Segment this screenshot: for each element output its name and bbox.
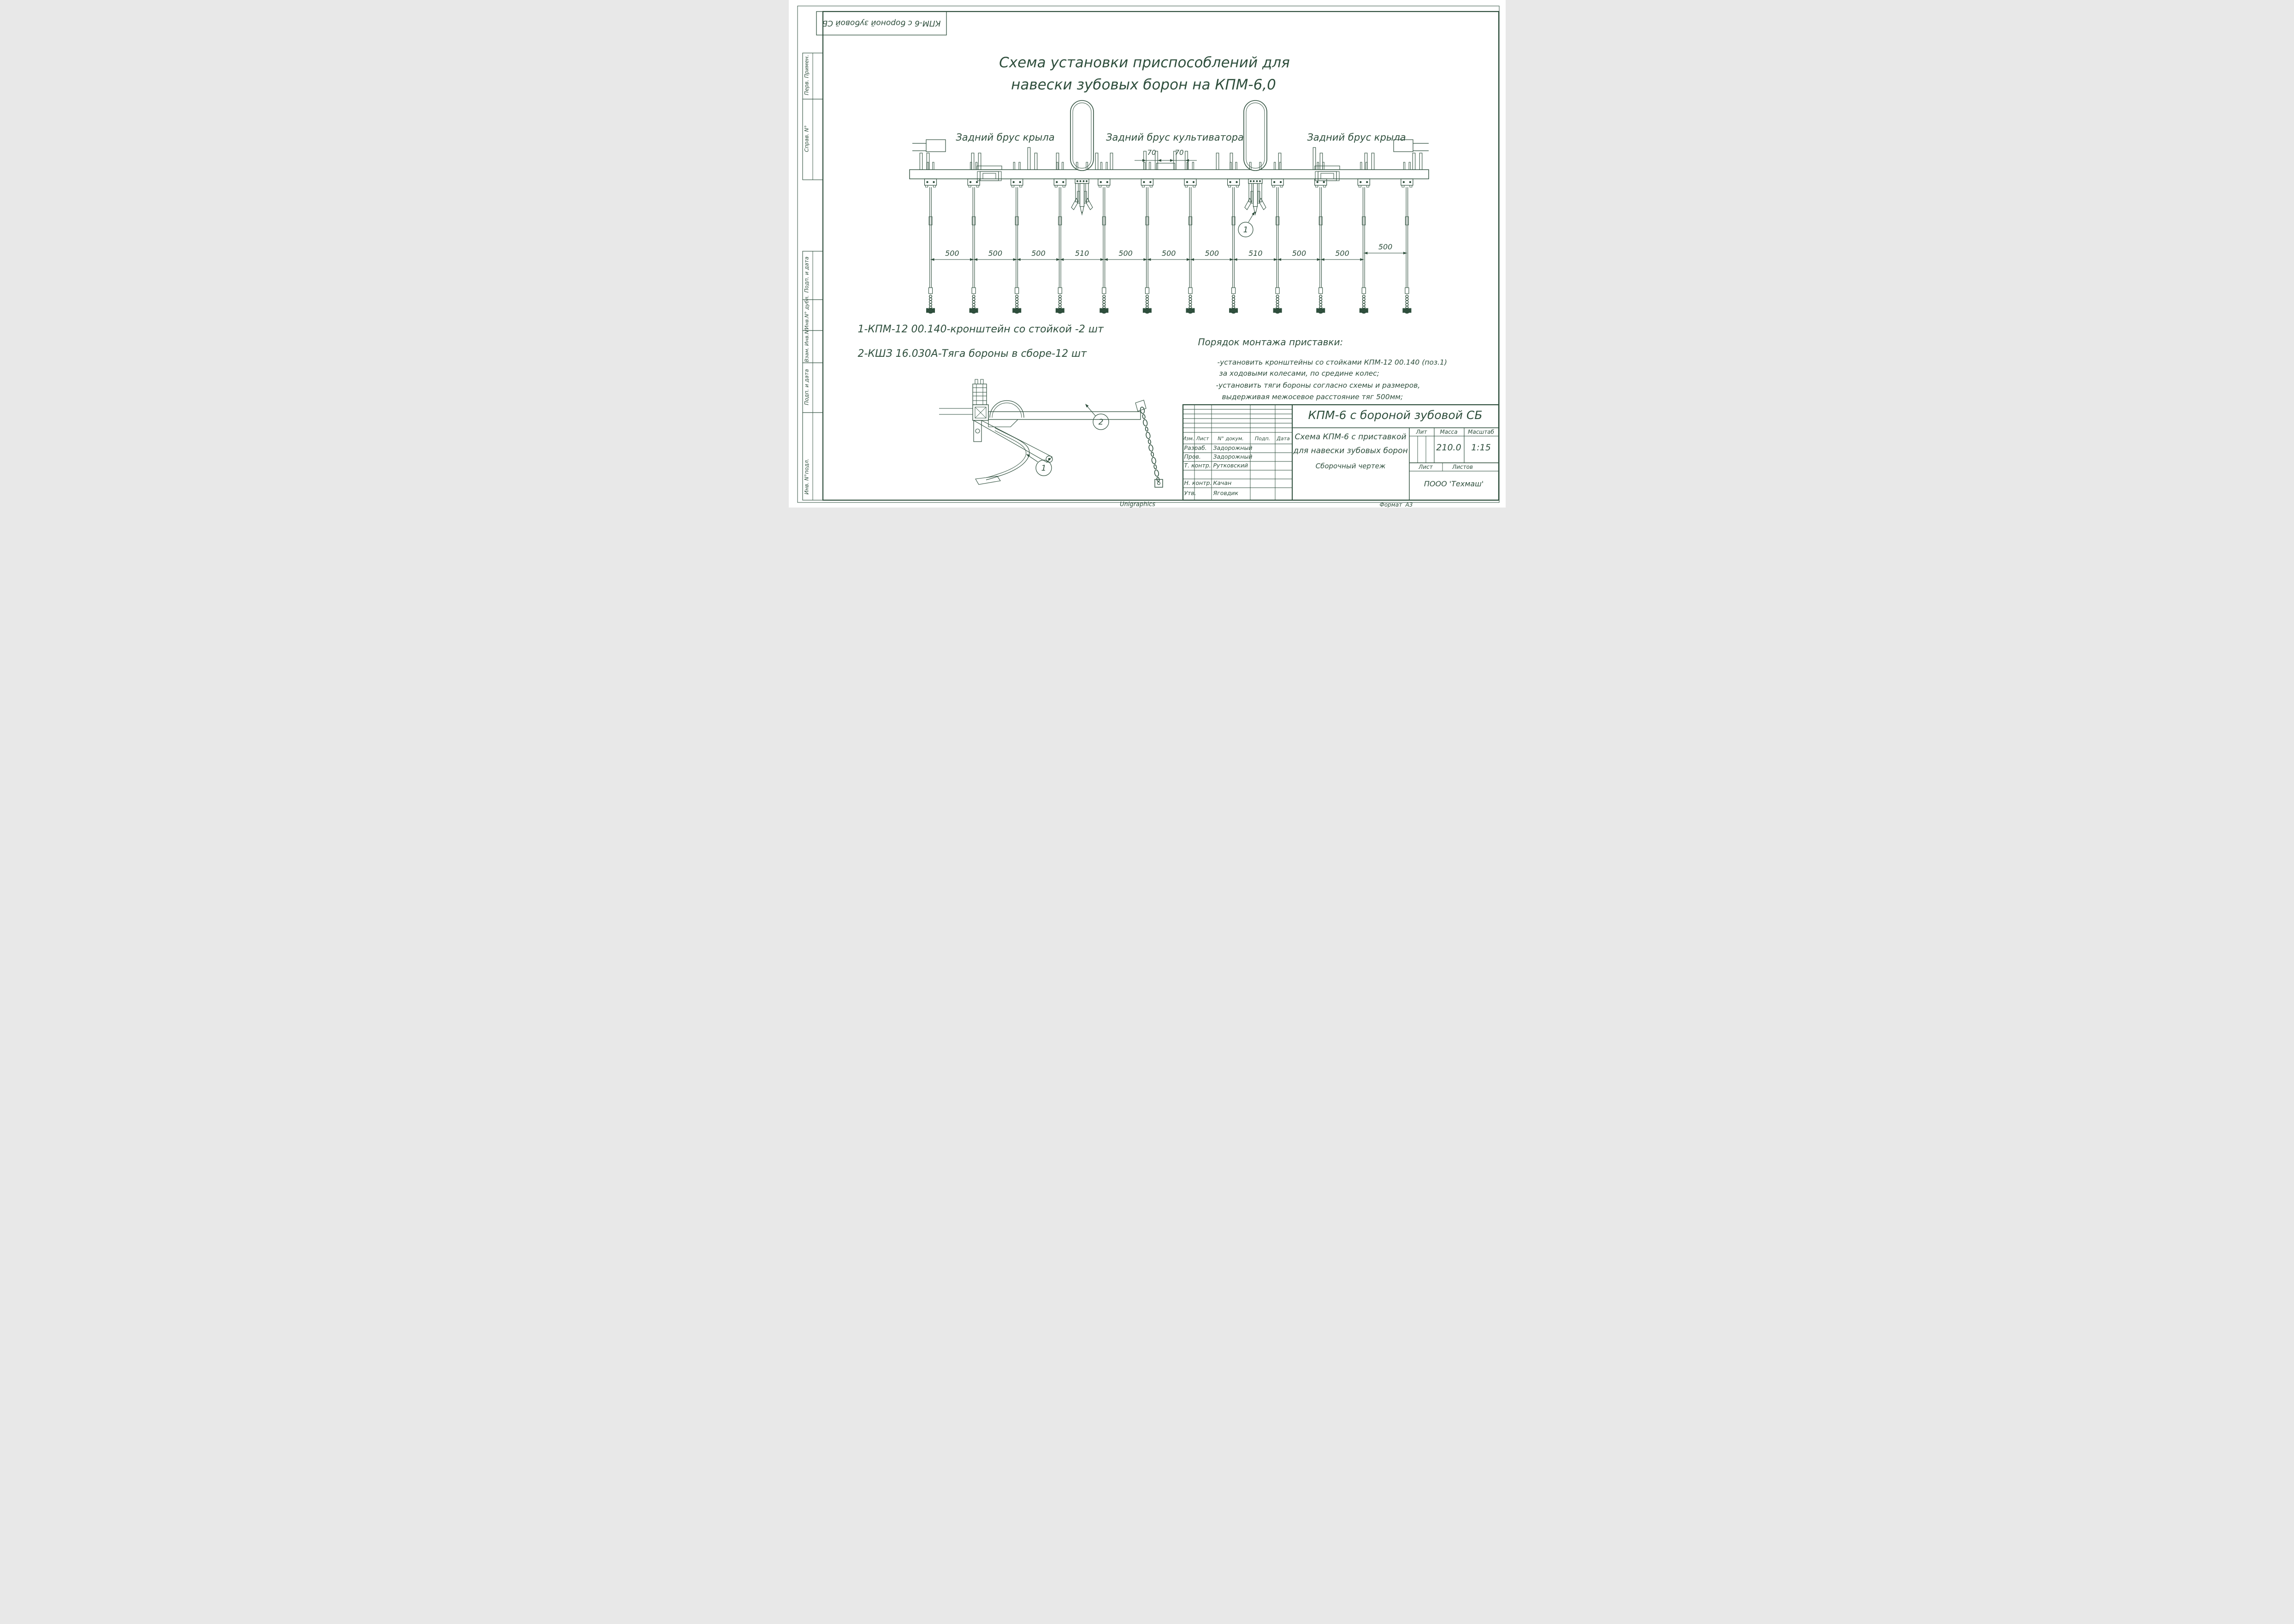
pivot-plate bbox=[974, 420, 981, 442]
chain-bead bbox=[1146, 303, 1148, 306]
u-bolt-stud bbox=[1019, 162, 1020, 170]
frame-post bbox=[1372, 153, 1374, 170]
procedure-line-4: выдерживая межосевое расстояние тяг 500м… bbox=[1222, 394, 1403, 401]
rect bbox=[969, 185, 971, 187]
rect bbox=[1315, 185, 1318, 187]
tooth-ring bbox=[1230, 308, 1236, 313]
rod-splice bbox=[1276, 217, 1279, 225]
frame-post bbox=[1278, 153, 1281, 170]
harrow-tie-rod bbox=[1358, 162, 1370, 313]
chain-bead bbox=[1015, 298, 1018, 301]
u-bolt-stud bbox=[1056, 162, 1058, 170]
chain-bead bbox=[1406, 298, 1408, 301]
wing-coupler bbox=[977, 166, 1002, 181]
chain-bead bbox=[1276, 298, 1279, 301]
bolt bbox=[1366, 181, 1368, 183]
dimension-value: 500 bbox=[1118, 249, 1133, 258]
u-bolt-stud bbox=[1360, 162, 1361, 170]
tooth-ring bbox=[1318, 308, 1323, 313]
titleblock-header-ndokum: N° докум. bbox=[1218, 436, 1244, 441]
tie-rod-bar bbox=[988, 412, 1141, 419]
tooth-collar bbox=[1145, 288, 1149, 294]
u-bolt-stud bbox=[1409, 162, 1410, 170]
bolt bbox=[1253, 180, 1254, 182]
rect bbox=[1409, 185, 1412, 187]
dimension-arrow bbox=[1190, 258, 1194, 261]
footer-format-label: Формат bbox=[1380, 502, 1402, 508]
chain-link bbox=[1154, 470, 1159, 477]
u-bolt-stud bbox=[1106, 162, 1107, 170]
chain-bead bbox=[1146, 301, 1148, 303]
titleblock-role-tkontr: Т. контр. bbox=[1184, 463, 1211, 469]
titleblock-header-list: Лист bbox=[1196, 436, 1209, 441]
u-bolt-stud bbox=[1062, 162, 1063, 170]
chain-bead bbox=[1276, 303, 1279, 306]
bolt bbox=[933, 181, 934, 183]
margin-label-sprav-n: Справ. N° bbox=[804, 99, 810, 179]
dimensions: 5005005005105005005005105005005007070 bbox=[930, 148, 1407, 261]
chain-link bbox=[1142, 419, 1147, 426]
leader-line bbox=[1087, 406, 1095, 416]
frame-post bbox=[1028, 148, 1030, 170]
tooth-collar bbox=[1318, 288, 1322, 294]
drawing-sheet: 5005005005105005005005105005005007070121… bbox=[789, 0, 1506, 508]
tooth-lug bbox=[1409, 308, 1411, 313]
chain-bead bbox=[972, 298, 975, 301]
u-bolt-stud bbox=[976, 162, 977, 170]
spring-tine-inner bbox=[986, 431, 1026, 478]
bolt bbox=[1079, 180, 1081, 182]
spring-tine bbox=[986, 428, 1029, 480]
bolt bbox=[1019, 181, 1021, 183]
wheel-arc-inner bbox=[992, 403, 1022, 418]
chain-end-hole bbox=[1157, 482, 1160, 485]
margin-label-inv-n-podl: Инв. N°подл. bbox=[804, 454, 810, 500]
u-bolt-stud bbox=[932, 162, 934, 170]
bolt bbox=[1012, 181, 1014, 183]
tip-point bbox=[1081, 212, 1082, 216]
titleblock-company: ПООО 'Техмаш' bbox=[1424, 480, 1484, 488]
rod-splice bbox=[972, 217, 975, 225]
rod-splice bbox=[1145, 217, 1148, 225]
chain-bead bbox=[929, 295, 932, 298]
tooth-ring bbox=[1361, 308, 1366, 313]
titleblock-doc-title: КПМ-6 с бороной зубовой СБ bbox=[1308, 409, 1482, 421]
tooth-collar bbox=[1405, 288, 1408, 294]
rect bbox=[1401, 185, 1404, 187]
leader-arrow bbox=[1252, 212, 1255, 215]
balloon-number: 1 bbox=[1243, 225, 1248, 235]
tooth-collar bbox=[972, 288, 976, 294]
chain-link bbox=[1147, 439, 1151, 444]
rect bbox=[1193, 185, 1195, 187]
bolt bbox=[1056, 181, 1058, 183]
harrow-tie-rod bbox=[1011, 162, 1023, 313]
margin-label-vzam-inv-n: Взам. Инв.N° bbox=[804, 330, 809, 362]
chain-bead bbox=[1102, 298, 1105, 301]
tip bbox=[1253, 207, 1257, 212]
chain-bead bbox=[929, 298, 932, 301]
tooth-lug bbox=[1323, 308, 1324, 313]
rect bbox=[1011, 185, 1014, 187]
harrow-tie-rod bbox=[1227, 162, 1239, 313]
titleblock-role-utv: Утв. bbox=[1184, 490, 1196, 496]
tooth-ring bbox=[1188, 308, 1193, 313]
titleblock-name-tkontr: Рутковский bbox=[1213, 463, 1248, 469]
titleblock-header-massa: Масса bbox=[1440, 429, 1457, 435]
dimension-value: 500 bbox=[1292, 249, 1306, 258]
titleblock-header-masshtab: Масштаб bbox=[1468, 429, 1494, 435]
rect bbox=[1315, 171, 1318, 181]
dimension-arrow bbox=[1317, 258, 1320, 261]
chain-bead bbox=[1189, 301, 1192, 303]
dimension-arrow bbox=[1360, 258, 1364, 261]
rect bbox=[977, 166, 1002, 170]
chain-bead bbox=[1232, 298, 1235, 301]
rod-splice bbox=[929, 217, 932, 225]
dimension-arrow bbox=[1274, 258, 1277, 261]
chain-bead bbox=[972, 301, 975, 303]
rect bbox=[1236, 185, 1238, 187]
u-bolt-stud bbox=[1274, 162, 1275, 170]
margin-label-podp-i-data-2: Подп. и дата bbox=[804, 362, 810, 412]
bolt bbox=[1193, 181, 1194, 183]
chain-bead bbox=[972, 295, 975, 298]
dimension-arrow bbox=[1230, 258, 1233, 261]
frame-post bbox=[1110, 153, 1113, 170]
tooth-lug bbox=[1193, 308, 1194, 313]
harrow-tie-rod bbox=[924, 162, 936, 313]
chain-bead bbox=[1276, 295, 1279, 298]
tooth-collar bbox=[1231, 288, 1235, 294]
wing bbox=[1071, 198, 1078, 210]
chain-bead bbox=[1406, 303, 1408, 306]
bolt bbox=[1273, 181, 1275, 183]
callout-balloon-bracket: 1 bbox=[1026, 454, 1052, 476]
harrow-tie-rod bbox=[1401, 162, 1413, 313]
chain-bead bbox=[1189, 303, 1192, 306]
corner-stamp-title: КПМ-6 с бороной зубовой СБ bbox=[817, 19, 946, 27]
dimension-arrow bbox=[1013, 258, 1017, 261]
bolt bbox=[1106, 181, 1108, 183]
clamp-tower bbox=[973, 384, 987, 405]
drawing-title-line1: Схема установки приспособлений для bbox=[999, 56, 1290, 70]
balloon-number: 2 bbox=[1098, 418, 1103, 427]
callout-balloon-rod: 2 bbox=[1085, 404, 1109, 430]
dimension-value: 500 bbox=[1031, 249, 1046, 258]
u-bolt-stud bbox=[1100, 162, 1102, 170]
u-bolt-stud bbox=[1230, 162, 1231, 170]
offset-value: 70 bbox=[1175, 148, 1183, 157]
titleblock-name-razrab: Задорожный bbox=[1213, 445, 1253, 451]
tooth-lug bbox=[1402, 308, 1404, 313]
rect bbox=[1142, 185, 1144, 187]
bolt bbox=[1250, 180, 1251, 182]
titleblock-doc-type: Сборочный чертеж bbox=[1316, 463, 1386, 470]
u-bolt-stud bbox=[1279, 162, 1281, 170]
margin-label-podp-i-data-1: Подп. и дата bbox=[804, 251, 810, 299]
chain-bead bbox=[1319, 301, 1322, 303]
rect bbox=[1323, 185, 1325, 187]
main-beam bbox=[910, 170, 1429, 179]
chain-link bbox=[1151, 457, 1156, 464]
tooth-lug bbox=[1236, 308, 1237, 313]
bolt bbox=[1076, 180, 1078, 182]
dimension-arrow bbox=[930, 258, 934, 261]
rod-splice bbox=[1319, 217, 1322, 225]
tooth-lug bbox=[1100, 308, 1101, 313]
bolt bbox=[1236, 181, 1237, 183]
rod-splice bbox=[1362, 217, 1365, 225]
tooth-ring bbox=[928, 308, 933, 313]
u-bolt-stud bbox=[1192, 162, 1194, 170]
label-rear-bar-left-wing: Задний брус крыла bbox=[956, 133, 1054, 142]
tooth-lug bbox=[1186, 308, 1188, 313]
u-bolt-stud bbox=[1235, 162, 1236, 170]
chain-bead bbox=[1058, 301, 1061, 303]
bolt bbox=[1256, 180, 1257, 182]
dimension-value: 500 bbox=[1335, 249, 1349, 258]
tooth-ring bbox=[1014, 308, 1019, 313]
tooth-lug bbox=[1012, 308, 1014, 313]
frame-post bbox=[1216, 153, 1219, 170]
chain-bead bbox=[1102, 301, 1105, 303]
sweep-blade bbox=[976, 476, 1000, 484]
chain-link bbox=[1148, 444, 1153, 451]
bolt bbox=[1360, 181, 1361, 183]
stand-pivot-hole bbox=[1048, 458, 1050, 460]
chain-bead bbox=[1232, 301, 1235, 303]
frame-post bbox=[1413, 153, 1415, 170]
chain-bead bbox=[1189, 298, 1192, 301]
frame-post bbox=[1095, 153, 1098, 170]
rect bbox=[1099, 185, 1101, 187]
bolt bbox=[1409, 181, 1411, 183]
rod-splice bbox=[1188, 217, 1192, 225]
leader-arrow bbox=[1085, 404, 1088, 407]
harrow-tie-rod bbox=[1098, 162, 1110, 313]
rect bbox=[976, 185, 979, 187]
chain-bead bbox=[1146, 298, 1148, 301]
chain-bead bbox=[972, 303, 975, 306]
rect bbox=[1359, 185, 1361, 187]
margin-label-inv-n-dubl: Инв.N° дубл. bbox=[804, 299, 809, 330]
tooth-lug bbox=[1149, 308, 1151, 313]
rect bbox=[1272, 185, 1275, 187]
titleblock-name-nkontr: Качан bbox=[1213, 480, 1232, 486]
titleblock-masshtab-value: 1:15 bbox=[1471, 443, 1491, 452]
harrow-tie-rod bbox=[968, 162, 980, 313]
tooth-lug bbox=[1106, 308, 1108, 313]
tooth-lug bbox=[1056, 308, 1058, 313]
balloon-number: 1 bbox=[1041, 464, 1046, 473]
procedure-line-2: за ходовыми колесами, по средине колес; bbox=[1219, 370, 1379, 378]
bolt bbox=[1082, 180, 1084, 182]
rect bbox=[1150, 185, 1152, 187]
titleblock-doc-name2: для навески зубовых борон bbox=[1293, 447, 1407, 455]
chain-bead bbox=[1058, 295, 1061, 298]
frame-post bbox=[1320, 153, 1323, 170]
chain-bead bbox=[1362, 303, 1365, 306]
chain-bead bbox=[1362, 298, 1365, 301]
tooth-collar bbox=[1015, 288, 1018, 294]
footer-format-value: А3 bbox=[1406, 502, 1413, 508]
titleblock-header-lit: Лит bbox=[1416, 429, 1427, 435]
tooth-lug bbox=[1019, 308, 1021, 313]
rod-splice bbox=[1102, 217, 1106, 225]
stand-stock bbox=[1080, 183, 1084, 207]
chain-bead bbox=[1319, 298, 1322, 301]
tooth-ring bbox=[971, 308, 976, 313]
rod-gusset bbox=[988, 419, 1018, 427]
bolt bbox=[1280, 181, 1282, 183]
u-bolt-stud bbox=[1143, 162, 1145, 170]
margin-label-perv-primen: Перв. Примен. bbox=[804, 52, 810, 98]
bolt bbox=[970, 181, 971, 183]
u-bolt-stud bbox=[1013, 162, 1015, 170]
chain-bead bbox=[1362, 295, 1365, 298]
dimension-value: 500 bbox=[1161, 249, 1176, 258]
dimension-arrow bbox=[1364, 252, 1367, 254]
bolt bbox=[1323, 181, 1324, 183]
bolt bbox=[1100, 181, 1102, 183]
chain-link bbox=[1145, 432, 1150, 439]
bolt bbox=[1086, 180, 1087, 182]
rod-splice bbox=[1405, 217, 1408, 225]
chain-bead bbox=[1015, 303, 1018, 306]
chain-bead bbox=[1015, 295, 1018, 298]
chain-bead bbox=[1406, 301, 1408, 303]
dimension-arrow bbox=[1060, 258, 1064, 261]
dimension-arrow bbox=[1147, 258, 1151, 261]
dimension-arrow bbox=[1403, 252, 1407, 254]
tooth-lug bbox=[976, 308, 978, 313]
u-bolt-stud bbox=[970, 162, 971, 170]
rect bbox=[1185, 185, 1188, 187]
titleblock-header-listov: Листов bbox=[1452, 464, 1473, 470]
titleblock-doc-name1: Схема КПМ-6 с приставкой bbox=[1295, 433, 1406, 441]
tooth-lug bbox=[933, 308, 934, 313]
harrow-tie-rod bbox=[1271, 162, 1283, 313]
titleblock-header-list2: Лист bbox=[1419, 464, 1432, 470]
callout-balloon-main: 1 bbox=[1238, 212, 1255, 237]
chain-bead bbox=[1276, 301, 1279, 303]
tooth-collar bbox=[1276, 288, 1279, 294]
chain-end-plate bbox=[1155, 479, 1163, 487]
offset-value: 70 bbox=[1147, 148, 1156, 157]
bolt bbox=[1149, 181, 1151, 183]
wheel-tire bbox=[1244, 100, 1267, 171]
rod-splice bbox=[1015, 217, 1018, 225]
dimension-arrow bbox=[1017, 258, 1020, 261]
tooth-collar bbox=[928, 288, 932, 294]
dimension-arrow bbox=[1187, 258, 1190, 261]
titleblock-massa-value: 210.0 bbox=[1436, 443, 1461, 452]
footer-generator: Unigraphics bbox=[1120, 502, 1155, 508]
wing bbox=[1086, 198, 1093, 210]
rod-splice bbox=[1058, 217, 1061, 225]
frame-post bbox=[920, 153, 922, 170]
chain-bead bbox=[1319, 303, 1322, 306]
tooth-lug bbox=[1316, 308, 1318, 313]
dimension-value: 500 bbox=[1205, 249, 1219, 258]
dimension-value: 500 bbox=[945, 249, 959, 258]
harrow-tie-rod bbox=[1054, 162, 1066, 313]
rect bbox=[1321, 173, 1334, 179]
rect bbox=[1055, 185, 1057, 187]
bolt bbox=[926, 181, 928, 183]
frame-post bbox=[1313, 148, 1316, 170]
label-rear-bar-cultivator: Задний брус культиватора bbox=[1106, 133, 1244, 142]
chain-bead bbox=[1102, 303, 1105, 306]
tooth-ring bbox=[1275, 308, 1280, 313]
tooth-collar bbox=[1058, 288, 1062, 294]
chain-link bbox=[1142, 414, 1145, 419]
titleblock-header-podp: Подп. bbox=[1255, 436, 1270, 441]
left-hitch-bracket bbox=[926, 140, 946, 152]
tooth-lug bbox=[1143, 308, 1145, 313]
chain-bead bbox=[929, 301, 932, 303]
tooth-lug bbox=[1273, 308, 1275, 313]
chain-bead bbox=[1058, 298, 1061, 301]
rect bbox=[933, 185, 935, 187]
tooth-lug bbox=[926, 308, 928, 313]
u-bolt-stud bbox=[1366, 162, 1367, 170]
chain-link bbox=[1145, 427, 1148, 431]
harrow-tie-rod bbox=[1184, 162, 1196, 313]
drawing-title-line2: навески зубовых борон на КПМ-6,0 bbox=[1011, 78, 1276, 92]
titleblock-name-prov: Задорожный bbox=[1213, 454, 1253, 460]
bolt bbox=[1143, 181, 1145, 183]
note-item-2: 2-КШЗ 16.030А-Тяга бороны в сборе-12 шт bbox=[858, 349, 1087, 359]
chain-bead bbox=[1102, 295, 1105, 298]
tooth-ring bbox=[1057, 308, 1063, 313]
dimension-arrow bbox=[974, 258, 977, 261]
dimension-arrow bbox=[1142, 159, 1146, 162]
rect bbox=[975, 379, 978, 384]
tire-outline bbox=[1070, 100, 1094, 171]
stand-stock bbox=[1253, 183, 1257, 207]
dimension-arrow bbox=[1170, 159, 1174, 162]
chain-link bbox=[1151, 452, 1154, 456]
rect bbox=[1280, 185, 1283, 187]
dimension-value: 500 bbox=[988, 249, 1002, 258]
bolt bbox=[1186, 181, 1188, 183]
tooth-ring bbox=[1144, 308, 1150, 313]
chain-bead bbox=[1015, 301, 1018, 303]
rect bbox=[999, 171, 1001, 181]
tooth-collar bbox=[1102, 288, 1106, 294]
dimension-value: 510 bbox=[1075, 249, 1089, 258]
tooth-lug bbox=[1229, 308, 1231, 313]
dimension-arrow bbox=[1320, 258, 1324, 261]
harrow-tie-rod bbox=[1141, 162, 1153, 313]
dimension-arrow bbox=[1277, 258, 1281, 261]
dimension-value: 500 bbox=[1378, 242, 1392, 251]
titleblock-role-prov: Пров. bbox=[1184, 454, 1201, 460]
wheel-tire bbox=[1070, 100, 1094, 171]
chain-link bbox=[1153, 465, 1157, 469]
harrow-tie-rod bbox=[1314, 162, 1326, 313]
bolt bbox=[976, 181, 978, 183]
rect bbox=[1019, 185, 1022, 187]
titleblock-header-izm: Изм. bbox=[1182, 436, 1194, 441]
titleblock-role-nkontr: Н. контр. bbox=[1184, 480, 1212, 486]
center-link-plate bbox=[1156, 163, 1175, 170]
dimension-arrow bbox=[1104, 258, 1107, 261]
bolt bbox=[1316, 181, 1318, 183]
dimension-arrow bbox=[970, 258, 974, 261]
